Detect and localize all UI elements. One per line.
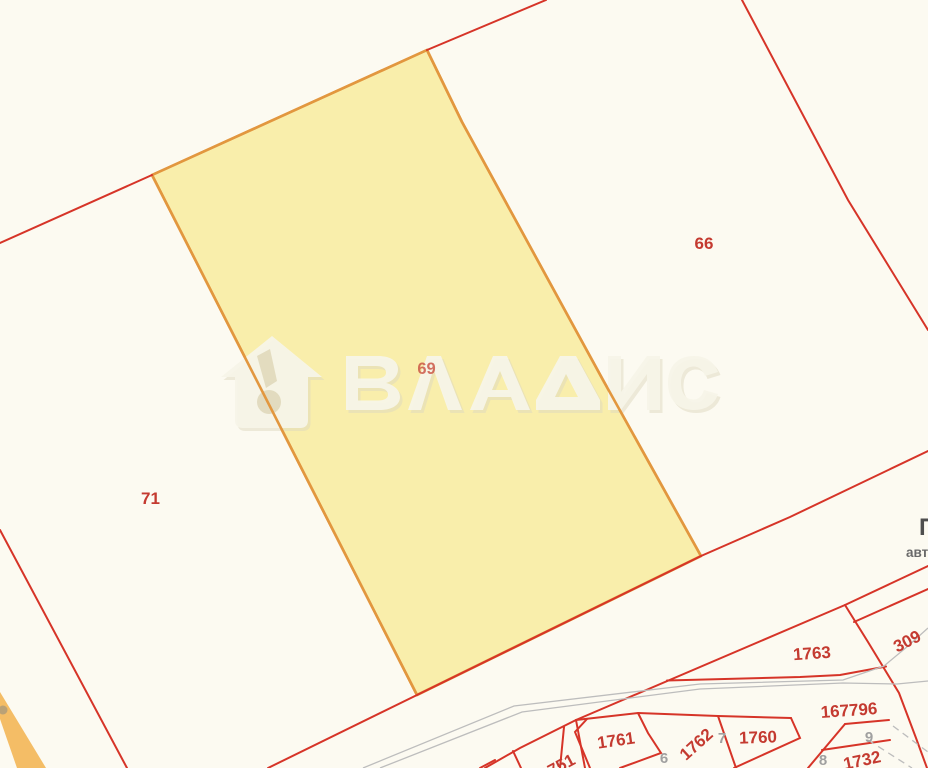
svg-text:66: 66: [695, 234, 714, 253]
svg-text:69: 69: [417, 360, 435, 378]
svg-text:1763: 1763: [792, 643, 831, 665]
svg-text:1760: 1760: [739, 727, 777, 747]
svg-text:8: 8: [819, 752, 827, 768]
svg-text:9: 9: [865, 729, 873, 746]
svg-text:авт: авт: [906, 545, 928, 560]
svg-text:71: 71: [141, 489, 160, 508]
svg-text:6: 6: [660, 750, 668, 767]
svg-text:167796: 167796: [820, 699, 878, 722]
svg-text:7: 7: [718, 730, 726, 747]
svg-text:Пе: Пе: [919, 514, 928, 541]
